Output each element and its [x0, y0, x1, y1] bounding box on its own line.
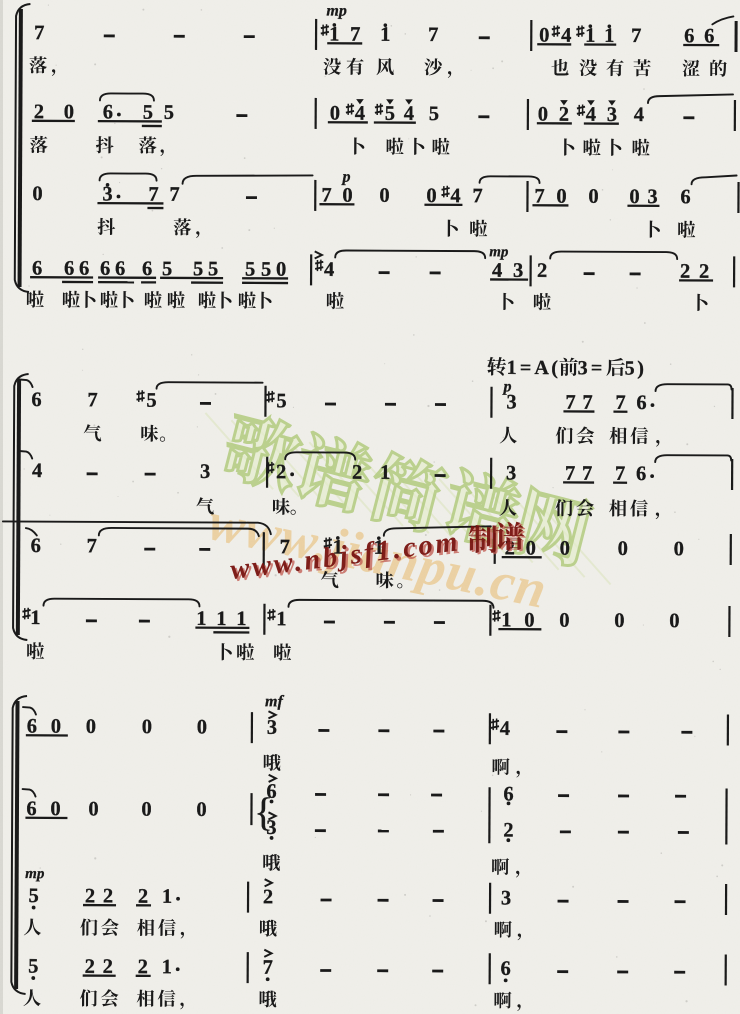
svg-text:7: 7 — [87, 535, 97, 557]
svg-text:mp: mp — [489, 244, 509, 260]
svg-text:=: = — [591, 357, 603, 379]
svg-text:2: 2 — [263, 886, 273, 908]
svg-text:0: 0 — [141, 799, 151, 821]
svg-text:=: = — [520, 357, 532, 379]
svg-text:7: 7 — [169, 184, 179, 206]
svg-text:5: 5 — [28, 956, 38, 978]
svg-text:3: 3 — [267, 717, 277, 739]
svg-text:7: 7 — [263, 957, 273, 979]
svg-text:6: 6 — [636, 463, 646, 485]
svg-text:7: 7 — [631, 25, 641, 47]
svg-text:0: 0 — [614, 610, 624, 632]
svg-text:6: 6 — [501, 958, 511, 980]
svg-text:mp: mp — [326, 2, 347, 19]
svg-text:0: 0 — [86, 716, 96, 738]
svg-text:6: 6 — [31, 389, 41, 411]
svg-text:A: A — [534, 357, 549, 379]
svg-text:1: 1 — [162, 886, 172, 908]
svg-text:5: 5 — [28, 885, 38, 907]
svg-text:): ) — [637, 358, 644, 380]
svg-text:5: 5 — [146, 390, 156, 412]
svg-text:6: 6 — [266, 781, 276, 803]
svg-text:0: 0 — [588, 186, 598, 208]
svg-text:0: 0 — [618, 538, 628, 560]
svg-text:p: p — [341, 169, 351, 186]
svg-text:3: 3 — [501, 887, 511, 909]
svg-text:3: 3 — [506, 462, 516, 484]
svg-text:5: 5 — [164, 102, 174, 124]
svg-text:1: 1 — [380, 24, 390, 46]
svg-text:0: 0 — [669, 610, 679, 632]
svg-text:1: 1 — [276, 608, 286, 630]
svg-text:1: 1 — [162, 956, 172, 978]
svg-text:5: 5 — [276, 390, 286, 412]
svg-text:(: ( — [551, 357, 558, 379]
svg-text:mf: mf — [265, 693, 285, 710]
svg-text:0: 0 — [196, 799, 206, 821]
svg-text:7: 7 — [34, 22, 44, 44]
svg-text:0: 0 — [32, 183, 42, 205]
svg-text:1: 1 — [30, 607, 40, 629]
svg-text:6: 6 — [680, 186, 690, 208]
svg-text:7: 7 — [472, 185, 482, 207]
svg-text:7: 7 — [87, 389, 97, 411]
svg-text:0: 0 — [559, 610, 569, 632]
svg-text:6: 6 — [31, 535, 41, 557]
svg-text:4: 4 — [32, 460, 42, 482]
svg-text:0: 0 — [197, 716, 207, 738]
svg-text:3: 3 — [578, 357, 588, 379]
svg-text:0: 0 — [142, 716, 152, 738]
svg-text:0: 0 — [88, 798, 98, 820]
svg-text:2: 2 — [537, 260, 547, 282]
svg-text:1: 1 — [380, 462, 390, 484]
svg-text:3: 3 — [200, 461, 210, 483]
svg-text:1: 1 — [507, 357, 517, 379]
svg-text:3: 3 — [266, 817, 276, 839]
svg-text:5: 5 — [429, 103, 439, 125]
svg-text:4: 4 — [634, 104, 644, 126]
svg-text:2: 2 — [276, 461, 286, 483]
svg-text:3: 3 — [506, 391, 516, 413]
svg-text:5: 5 — [625, 357, 635, 379]
svg-text:6: 6 — [636, 392, 646, 414]
svg-text:7: 7 — [428, 24, 438, 46]
svg-text:0: 0 — [379, 185, 389, 207]
svg-text:4: 4 — [324, 259, 334, 281]
svg-text:0: 0 — [560, 538, 570, 560]
svg-text:mp: mp — [25, 866, 45, 882]
svg-text:2: 2 — [352, 462, 362, 484]
svg-text:0: 0 — [674, 538, 684, 560]
svg-text:4: 4 — [500, 718, 510, 740]
